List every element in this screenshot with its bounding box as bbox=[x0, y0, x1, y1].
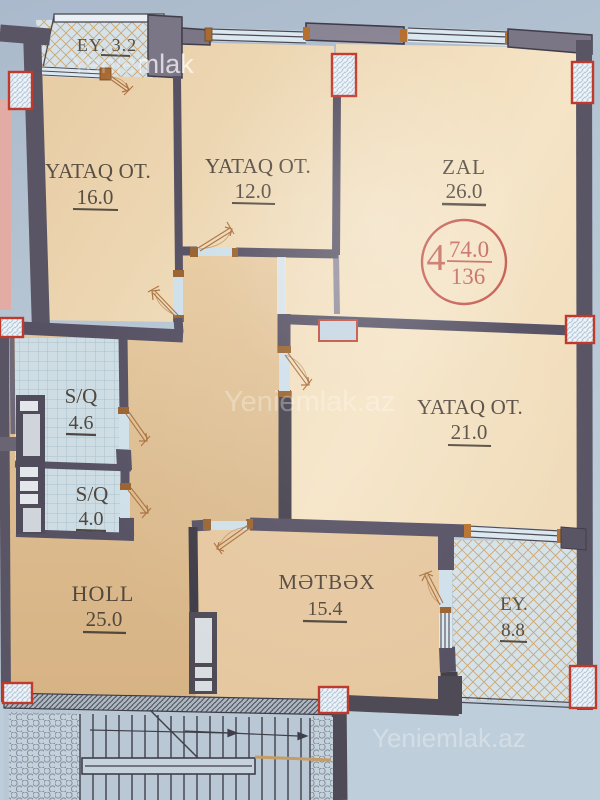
svg-text:16.0: 16.0 bbox=[77, 185, 114, 209]
svg-text:25.0: 25.0 bbox=[86, 607, 123, 631]
svg-text:Yeniemlak.az: Yeniemlak.az bbox=[372, 723, 526, 753]
svg-text:YATAQ OT.: YATAQ OT. bbox=[45, 159, 151, 183]
